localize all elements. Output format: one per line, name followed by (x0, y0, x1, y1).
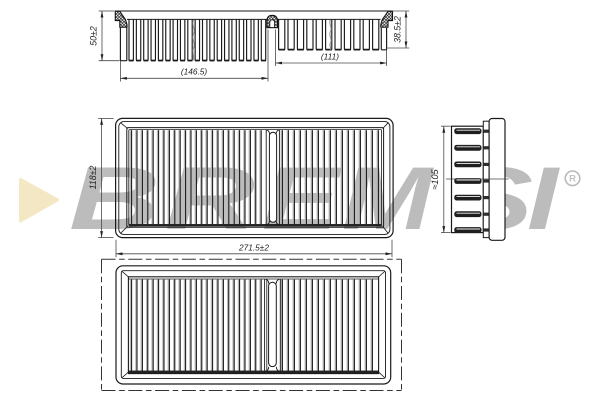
svg-text:(146.5): (146.5) (181, 67, 208, 77)
svg-text:38.5±2: 38.5±2 (393, 16, 403, 43)
svg-text:R: R (569, 174, 576, 185)
svg-text:118±2: 118±2 (88, 166, 98, 190)
svg-text:(111): (111) (321, 51, 339, 61)
svg-text:271.5±2: 271.5±2 (238, 243, 269, 253)
svg-text:I: I (527, 148, 561, 248)
svg-text:50±2: 50±2 (88, 26, 98, 46)
svg-text:≈105: ≈105 (430, 168, 440, 189)
